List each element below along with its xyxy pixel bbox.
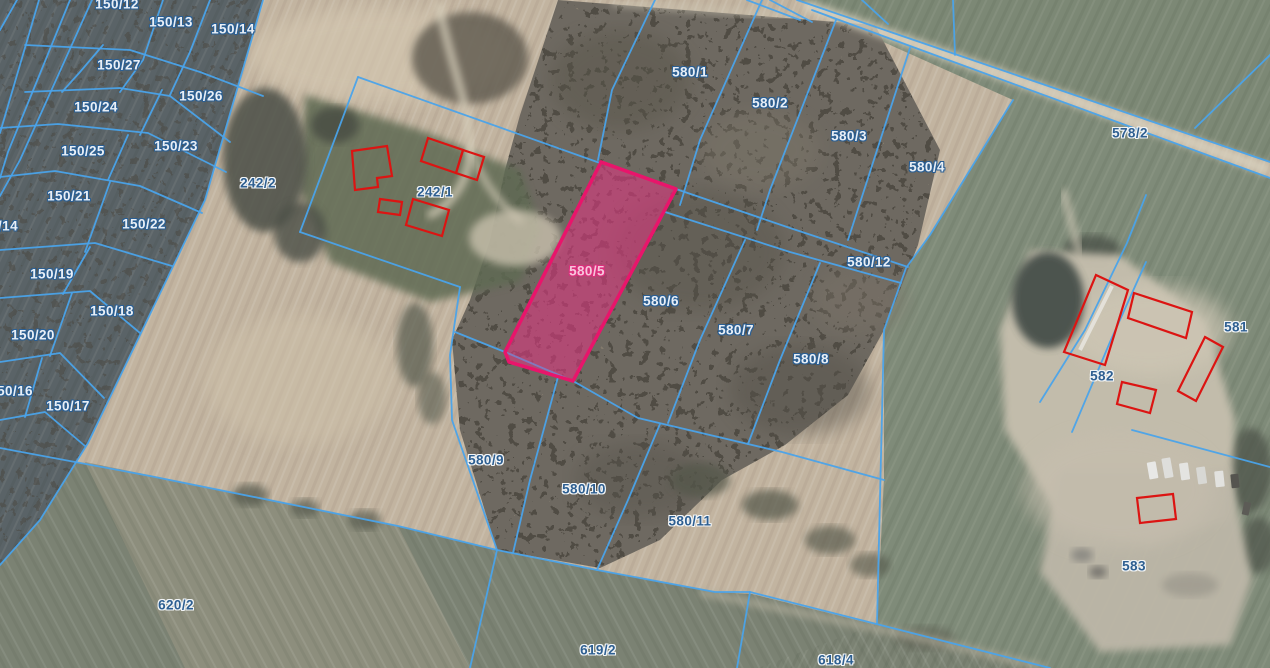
parcel-label-150/26[interactable]: 150/26 — [179, 89, 223, 104]
parcel-label-580/1[interactable]: 580/1 — [672, 65, 708, 80]
parcel-label-578/2[interactable]: 578/2 — [1112, 126, 1148, 141]
parcel-label-580/5[interactable]: 580/5 — [569, 264, 605, 279]
parcel-label-150/18[interactable]: 150/18 — [90, 304, 134, 319]
parcel-label-619/2[interactable]: 619/2 — [580, 643, 616, 658]
parcel-label-150/20[interactable]: 150/20 — [11, 328, 55, 343]
parcel-label-582[interactable]: 582 — [1090, 369, 1114, 384]
parcel-label-150/13[interactable]: 150/13 — [149, 15, 193, 30]
parcel-label-150/14[interactable]: 150/14 — [211, 22, 255, 37]
parcel-label-242/2[interactable]: 242/2 — [240, 176, 276, 191]
parcel-label-580/3[interactable]: 580/3 — [831, 129, 867, 144]
parcel-label-50/16[interactable]: 50/16 — [0, 384, 33, 399]
parcel-label-150/21[interactable]: 150/21 — [47, 189, 91, 204]
parcel-labels: 150/12150/13150/14150/27150/26150/24150/… — [0, 0, 1270, 668]
parcel-label-580/6[interactable]: 580/6 — [643, 294, 679, 309]
parcel-label-150/12[interactable]: 150/12 — [95, 0, 139, 12]
parcel-label-580/11[interactable]: 580/11 — [669, 514, 712, 529]
parcel-label-580/12[interactable]: 580/12 — [847, 255, 891, 270]
parcel-label-581[interactable]: 581 — [1224, 320, 1248, 335]
parcel-label-583[interactable]: 583 — [1122, 559, 1146, 574]
parcel-label-580/4[interactable]: 580/4 — [909, 160, 945, 175]
parcel-label-580/2[interactable]: 580/2 — [752, 96, 788, 111]
map-canvas[interactable]: 150/12150/13150/14150/27150/26150/24150/… — [0, 0, 1270, 668]
parcel-label-242/1[interactable]: 242/1 — [417, 185, 453, 200]
parcel-label-150/19[interactable]: 150/19 — [30, 267, 74, 282]
parcel-label-580/7[interactable]: 580/7 — [718, 323, 754, 338]
parcel-label-/14[interactable]: /14 — [0, 219, 18, 234]
parcel-label-150/24[interactable]: 150/24 — [74, 100, 118, 115]
parcel-label-150/25[interactable]: 150/25 — [61, 144, 105, 159]
parcel-label-150/22[interactable]: 150/22 — [122, 217, 166, 232]
parcel-label-150/17[interactable]: 150/17 — [46, 399, 90, 414]
parcel-label-620/2[interactable]: 620/2 — [158, 598, 194, 613]
parcel-label-150/23[interactable]: 150/23 — [154, 139, 198, 154]
parcel-label-580/8[interactable]: 580/8 — [793, 352, 829, 367]
parcel-label-580/9[interactable]: 580/9 — [468, 453, 504, 468]
parcel-label-150/27[interactable]: 150/27 — [97, 58, 141, 73]
parcel-label-580/10[interactable]: 580/10 — [562, 482, 606, 497]
parcel-label-618/4[interactable]: 618/4 — [818, 653, 854, 668]
